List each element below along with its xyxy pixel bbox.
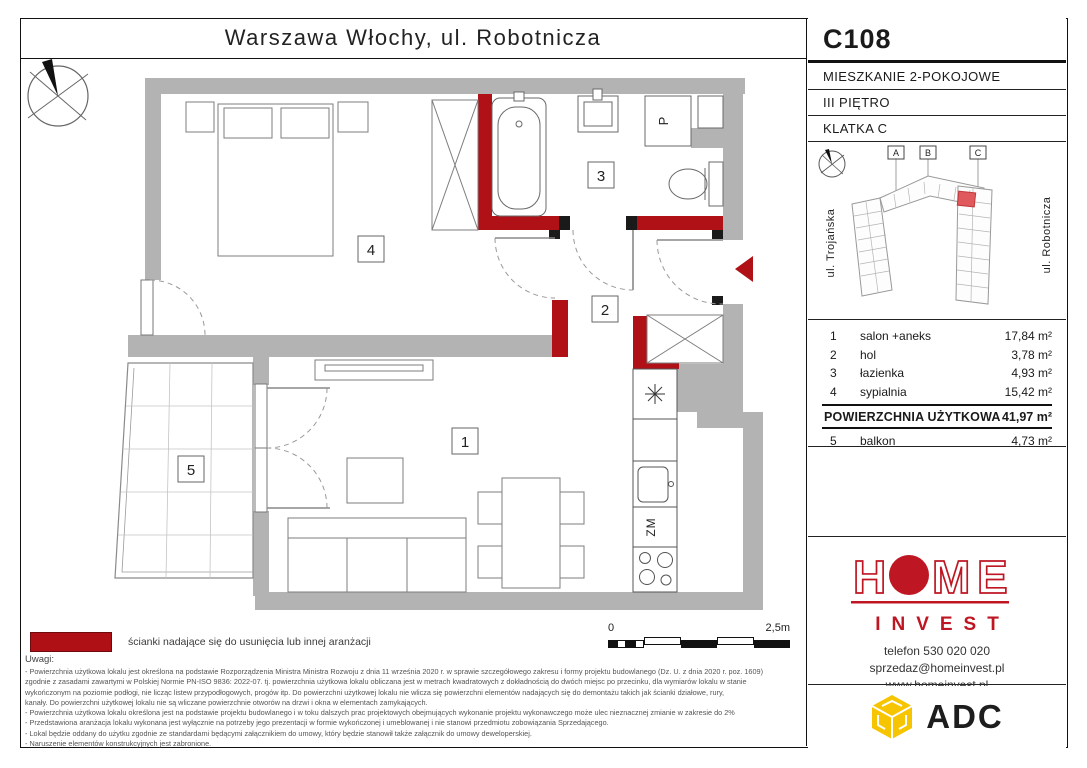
legend-red-swatch [30, 632, 112, 652]
adc-cube-icon [870, 693, 914, 741]
note-line: - Powierzchnia użytkowa lokalu określona… [25, 708, 797, 718]
home-invest-logo: H M E [837, 549, 1037, 607]
staircase-label-a: A [893, 148, 899, 158]
staircase-label-c: C [975, 148, 982, 158]
table-row: 1 salon +aneks 17,84 m² [822, 327, 1052, 346]
note-line: zgodnie z zasadami zawartymi w Polskiej … [25, 677, 797, 687]
room-name: łazienka [860, 366, 1011, 380]
unit-type: MIESZKANIE 2-POKOJOWE [808, 63, 1066, 90]
logo-invest-text: INVEST [808, 614, 1066, 636]
panel-divider [806, 18, 807, 746]
room-num: 4 [822, 385, 860, 399]
room-num: 2 [822, 348, 860, 362]
compass-icon [819, 149, 845, 177]
room-area: 4,93 m² [1011, 366, 1052, 380]
note-line: - Powierzchnia użytkowa lokalu jest okre… [25, 667, 797, 677]
table-row: 2 hol 3,78 m² [822, 346, 1052, 365]
staircase-label-b: B [925, 148, 931, 158]
street-label-right: ul. Robotnicza [1041, 175, 1055, 295]
room-name: sypialnia [860, 385, 1005, 399]
notes-heading: Uwagi: [25, 654, 797, 665]
scale-start: 0 [608, 622, 614, 636]
room-num: 3 [822, 366, 860, 380]
room-area: 17,84 m² [1005, 329, 1052, 343]
site-plan: A B C [808, 142, 1066, 320]
notes: Uwagi: - Powierzchnia użytkowa lokalu je… [25, 654, 797, 749]
note-line: kanały. Do powierzchni użytkowej lokalu … [25, 698, 797, 708]
logo-letter-e: E [977, 551, 1008, 603]
scale-bar-graphic [608, 637, 790, 649]
room-name: hol [860, 348, 1011, 362]
logo-letter-h: H [853, 551, 886, 603]
adc-wordmark: ADC [926, 698, 1004, 736]
partner-block: ADC [808, 686, 1066, 748]
logo-letter-m: M [932, 551, 970, 603]
unit-staircase: KLATKA C [808, 116, 1066, 142]
table-row: 4 sypialnia 15,42 m² [822, 383, 1052, 402]
total-area-row: POWIERZCHNIA UŻYTKOWA 41,97 m² [822, 404, 1052, 429]
site-plan-drawing: A B C [808, 142, 1066, 319]
total-area: 41,97 m² [1002, 410, 1052, 424]
staircase-labels: A B C [888, 146, 986, 159]
phone: telefon 530 020 020 [808, 643, 1066, 660]
note-line: - Przedstawiona aranżacja lokalu wykonan… [25, 718, 797, 728]
room-name: salon +aneks [860, 329, 1005, 343]
panel-spacer [808, 447, 1066, 537]
room-num: 1 [822, 329, 860, 343]
note-line: - Lokal będzie oddany do użytku zgodnie … [25, 729, 797, 739]
unit-floor: III PIĘTRO [808, 90, 1066, 116]
note-line: - Naruszenie elementów konstrukcyjnych j… [25, 739, 797, 749]
highlighted-unit [957, 191, 975, 207]
street-label-left: ul. Trojańska [825, 183, 839, 303]
room-area: 3,78 m² [1011, 348, 1052, 362]
legend-text: ścianki nadające się do usunięcia lub in… [128, 636, 371, 648]
scale-bar: 0 2,5m [608, 622, 790, 649]
email: sprzedaz@homeinvest.pl [808, 660, 1066, 677]
unit-code: C108 [808, 18, 1066, 63]
room-area: 15,42 m² [1005, 385, 1052, 399]
room-table: 1 salon +aneks 17,84 m² 2 hol 3,78 m² 3 … [808, 320, 1066, 447]
scale-end: 2,5m [766, 622, 790, 636]
logo-circle-o [889, 555, 929, 595]
note-line: wykończonym na poziomie podłogi, nie lic… [25, 688, 797, 698]
total-label: POWIERZCHNIA UŻYTKOWA [822, 410, 1002, 424]
developer-block: H M E INVEST telefon 530 020 020 sprzeda… [808, 537, 1066, 685]
table-row: 3 łazienka 4,93 m² [822, 364, 1052, 383]
